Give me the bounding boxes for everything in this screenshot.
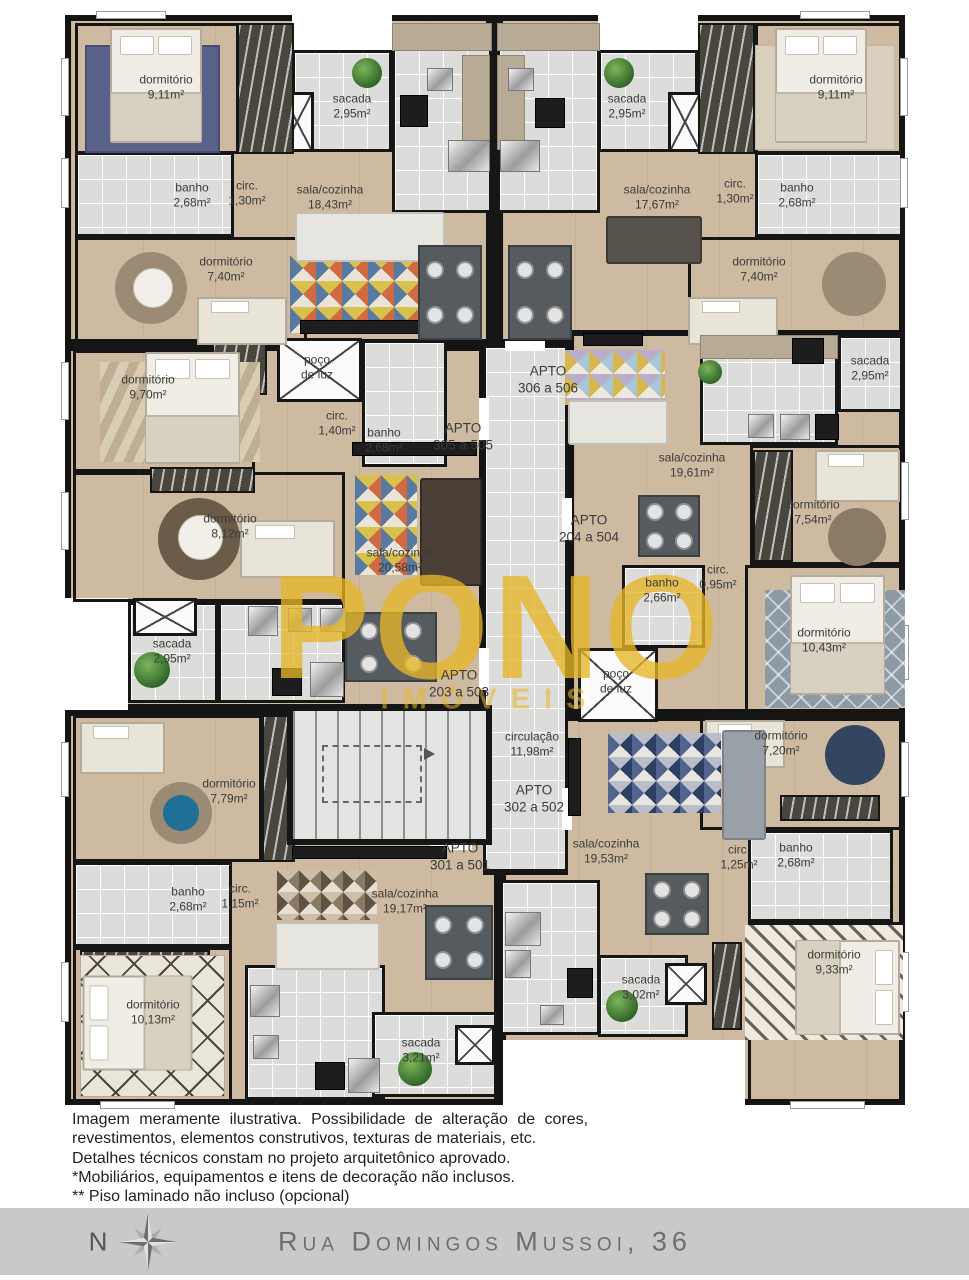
room-label: circ.1,40m² — [318, 409, 355, 440]
shaft — [668, 92, 702, 152]
watermark-subtitle: IMÓVEIS — [381, 684, 600, 717]
room-label: sacada3,21m² — [402, 1036, 441, 1067]
floor-plan: PONO IMÓVEIS dormitório9,11m² sacada2,95… — [0, 0, 969, 1280]
room-label: dormitório9,70m² — [121, 373, 174, 404]
sofa — [606, 216, 702, 264]
fridge — [500, 140, 540, 172]
room-label: dormitório9,11m² — [139, 73, 192, 104]
appliance — [815, 414, 839, 440]
bed — [145, 352, 240, 464]
rug — [277, 870, 377, 920]
plant-icon — [352, 58, 382, 88]
round-rug — [822, 252, 886, 316]
window — [61, 158, 69, 208]
sink — [427, 68, 453, 91]
counter — [462, 55, 490, 150]
window — [900, 158, 908, 208]
rug — [608, 733, 721, 813]
stair-path — [322, 745, 422, 803]
corridor-end-wall — [483, 869, 568, 875]
washer — [250, 985, 280, 1017]
light-well-label: poçode luz — [301, 353, 333, 384]
window — [100, 1101, 175, 1109]
bathroom — [73, 862, 232, 947]
room-label: circ.0,95m² — [699, 563, 736, 594]
window — [901, 742, 909, 797]
room-label: dormitório7,40m² — [199, 255, 252, 286]
sink — [748, 414, 774, 438]
room-label: dormitório9,33m² — [807, 948, 860, 979]
compass-north-label: N — [89, 1227, 108, 1258]
sideboard — [292, 846, 447, 859]
single-bed — [815, 450, 900, 502]
room-label: dormitório9,11m² — [809, 73, 862, 104]
room-label: sacada2,95m² — [608, 92, 647, 123]
disclaimer-line: ** Piso laminado não incluso (opcional) — [72, 1187, 650, 1206]
room-label: circ.1,15m² — [221, 882, 258, 913]
shaft — [133, 598, 197, 636]
washer — [505, 950, 531, 978]
room-label: sacada2,95m² — [153, 637, 192, 668]
round-chair — [133, 268, 173, 308]
room-label: dormitório7,20m² — [754, 729, 807, 760]
fridge — [448, 140, 490, 172]
apto-label: APTO305 a 505 — [433, 420, 493, 455]
room-label: banho2,68m² — [777, 841, 814, 872]
sink — [508, 68, 534, 91]
shaft — [665, 963, 707, 1005]
dining-table — [645, 873, 709, 935]
dining-table — [508, 245, 572, 340]
window — [61, 962, 69, 1022]
room-label: sala/cozinha19,53m² — [573, 837, 640, 868]
stove — [315, 1062, 345, 1090]
dining-table — [418, 245, 482, 340]
wardrobe — [698, 23, 755, 154]
room-label: dormitório7,54m² — [786, 498, 839, 529]
stair-direction-arrow-icon — [424, 748, 435, 760]
apto-label: APTO302 a 502 — [504, 782, 564, 817]
window — [96, 11, 166, 19]
room-label: circ.1,30m² — [716, 177, 753, 208]
fridge — [348, 1058, 380, 1093]
room-label: banho2,68m² — [778, 181, 815, 212]
counter — [392, 23, 492, 51]
stove — [400, 95, 428, 127]
disclaimer-text: Imagem meramente ilustrativa. Possibilid… — [72, 1110, 650, 1207]
window — [800, 11, 870, 19]
room-label: banho2,68m² — [169, 885, 206, 916]
plant-icon — [698, 360, 722, 384]
room-label: circ.1,25m² — [720, 843, 757, 874]
room-label: sala/cozinha19,17m² — [372, 887, 439, 918]
disclaimer-line: Detalhes técnicos constam no projeto arq… — [72, 1149, 650, 1168]
rug — [565, 350, 665, 405]
room-label: dormitório10,13m² — [126, 998, 179, 1029]
window — [61, 492, 69, 550]
window — [61, 742, 69, 797]
apto-label: APTO301 a 501 — [430, 840, 490, 875]
single-bed — [80, 722, 165, 774]
room-label: dormitório7,79m² — [202, 777, 255, 808]
stove — [567, 968, 593, 998]
exterior-notch — [598, 15, 698, 50]
room-label: sala/cozinha18,43m² — [297, 183, 364, 214]
apto-label: APTO203 a 503 — [429, 667, 489, 702]
sink — [253, 1035, 279, 1059]
circulation-label: circulação11,98m² — [505, 730, 559, 761]
stove — [792, 338, 824, 364]
window — [901, 462, 909, 520]
appliance — [780, 414, 810, 440]
single-bed — [197, 297, 287, 345]
exterior-notch — [65, 598, 128, 710]
round-rug — [825, 725, 885, 785]
room-label: sacada2,95m² — [851, 354, 890, 385]
room-label: banho2,68m² — [173, 181, 210, 212]
wardrobe — [237, 23, 294, 154]
bathroom — [748, 830, 893, 922]
room-label: circ.1,30m² — [228, 179, 265, 210]
door-gap — [505, 341, 545, 351]
wardrobe — [780, 795, 880, 821]
room-label: sacada3,02m² — [622, 973, 661, 1004]
compass-rose-icon — [118, 1212, 178, 1272]
wardrobe — [150, 467, 255, 493]
shaft — [455, 1025, 495, 1065]
sofa — [568, 400, 668, 445]
counter — [497, 23, 600, 51]
disclaimer-line: revestimentos, elementos construtivos, t… — [72, 1129, 650, 1148]
plant-icon — [604, 58, 634, 88]
room-label: sala/cozinha17,67m² — [624, 183, 691, 214]
room-label: sacada2,95m² — [333, 92, 372, 123]
sink — [540, 1005, 564, 1025]
sofa — [275, 922, 380, 970]
room-label: sala/cozinha19,61m² — [659, 451, 726, 482]
tv-sideboard — [568, 738, 581, 816]
disclaimer-line: *Mobiliários, equipamentos e itens de de… — [72, 1168, 650, 1187]
light-well-label: poçode luz — [600, 667, 632, 698]
street-address: Rua Domingos Mussoi, 36 — [278, 1227, 692, 1258]
window — [61, 362, 69, 420]
exterior-notch — [292, 15, 392, 50]
room-label: dormitório8,12m² — [203, 512, 256, 543]
apto-label: APTO306 a 506 — [518, 363, 578, 398]
room-label: banho2,66m² — [643, 576, 680, 607]
window — [61, 58, 69, 116]
room-label: sala/cozinha20,58m² — [367, 546, 434, 577]
room-label: dormitório10,43m² — [797, 626, 850, 657]
window — [900, 58, 908, 116]
window — [790, 1101, 865, 1109]
apto-label: APTO204 a 504 — [559, 512, 619, 547]
stove — [535, 98, 565, 128]
tv-sideboard — [583, 333, 643, 346]
disclaimer-line: Imagem meramente ilustrativa. Possibilid… — [72, 1110, 650, 1129]
bathroom — [755, 152, 903, 237]
wardrobe — [712, 942, 742, 1030]
fridge — [505, 912, 541, 946]
room-label: banho2,68m² — [365, 426, 402, 457]
room-label: dormitório7,40m² — [732, 255, 785, 286]
round-chair — [163, 795, 199, 831]
exterior-notch — [503, 1040, 745, 1105]
